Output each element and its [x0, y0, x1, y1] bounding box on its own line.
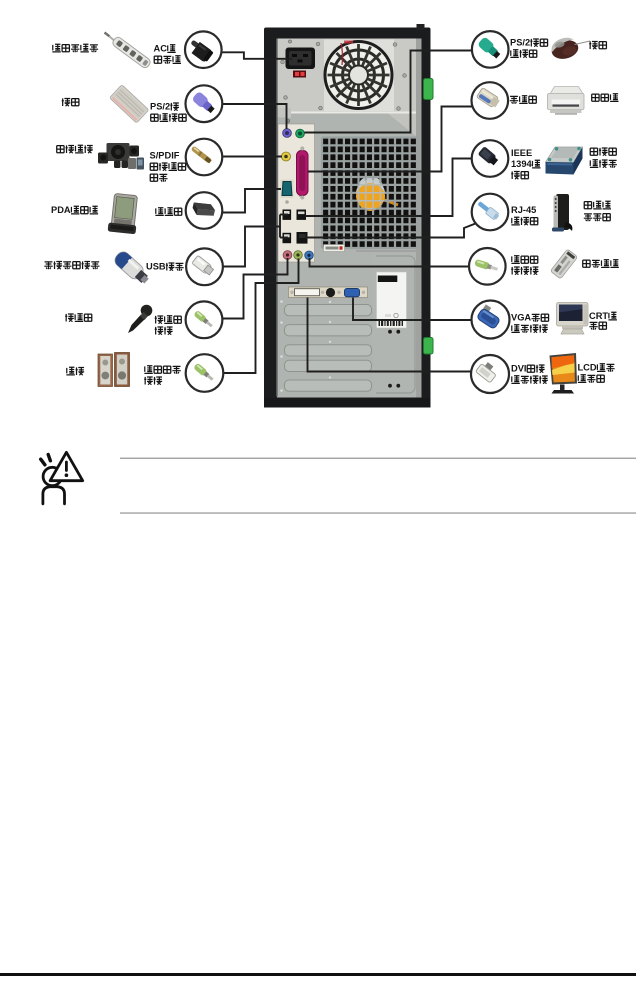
svg-text:S/PDIF: S/PDIF: [150, 151, 180, 161]
svg-text:PS/2: PS/2: [510, 38, 530, 48]
svg-text:IEEE: IEEE: [511, 148, 532, 158]
svg-text:USB: USB: [146, 262, 166, 272]
svg-text:CRT: CRT: [589, 311, 608, 321]
svg-text:LCD: LCD: [578, 363, 597, 373]
svg-text:PS/2: PS/2: [150, 102, 170, 112]
svg-text:RJ-45: RJ-45: [511, 205, 536, 215]
svg-text:VGA: VGA: [511, 313, 531, 323]
svg-text:PDA: PDA: [51, 205, 71, 215]
svg-text:1394: 1394: [511, 159, 533, 169]
svg-text:AC: AC: [154, 44, 168, 54]
svg-text:DVI: DVI: [511, 364, 527, 374]
svg-text:ASUS: ASUS: [379, 277, 395, 283]
